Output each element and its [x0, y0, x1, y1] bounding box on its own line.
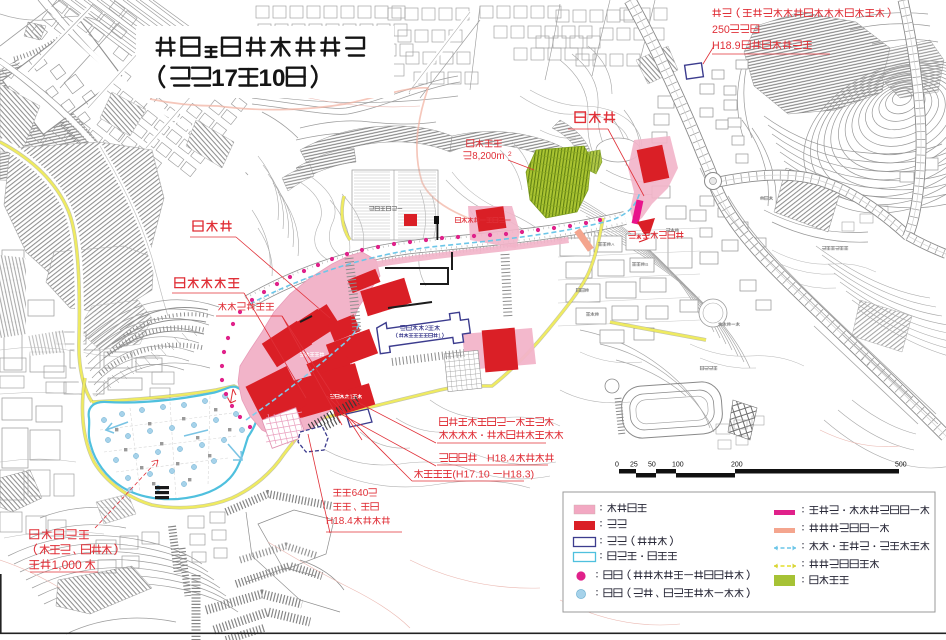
svg-text:2: 2 — [508, 151, 512, 158]
svg-text:2: 2 — [425, 325, 429, 332]
svg-text:H18.4: H18.4 — [326, 516, 353, 527]
svg-text:25: 25 — [630, 462, 638, 469]
svg-text:200: 200 — [731, 462, 743, 469]
svg-text:10: 10 — [259, 65, 286, 92]
svg-text:8,200m: 8,200m — [472, 151, 504, 162]
svg-text:500: 500 — [895, 462, 907, 469]
svg-text:640: 640 — [352, 488, 369, 499]
svg-text:250: 250 — [712, 24, 730, 36]
svg-text:50: 50 — [648, 462, 656, 469]
svg-text:B: B — [645, 262, 648, 267]
svg-text:100: 100 — [672, 462, 684, 469]
svg-text:17: 17 — [211, 65, 238, 92]
svg-text:H18.4: H18.4 — [487, 453, 515, 465]
svg-text:0: 0 — [615, 462, 619, 469]
svg-text:1: 1 — [438, 333, 441, 339]
svg-text:(H17.10: (H17.10 — [452, 469, 490, 481]
svg-text:H18.9: H18.9 — [712, 40, 741, 52]
svg-text:H18.3): H18.3) — [503, 469, 535, 481]
svg-text:1,000: 1,000 — [52, 558, 83, 572]
